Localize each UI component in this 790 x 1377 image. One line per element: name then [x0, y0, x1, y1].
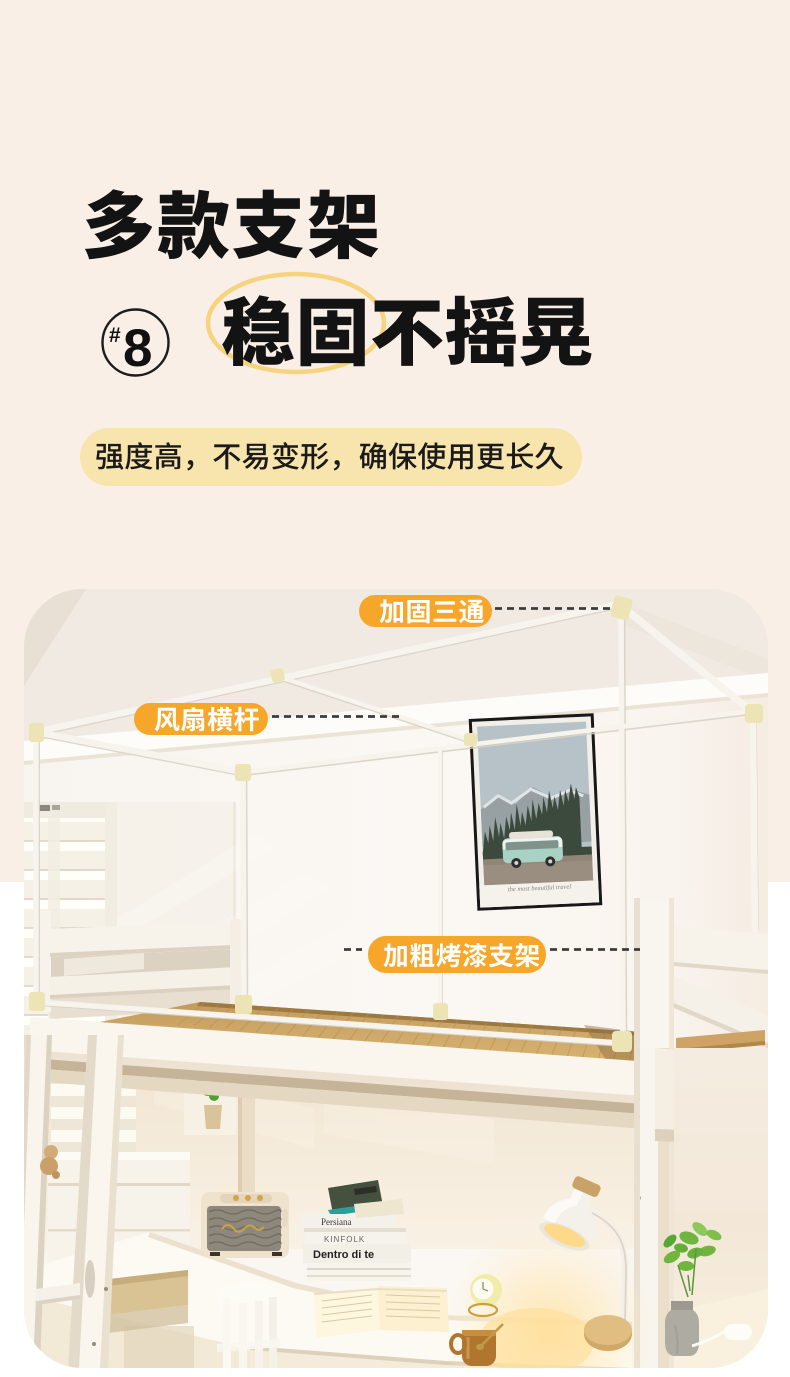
svg-text:8: 8 — [123, 319, 152, 378]
svg-text:Dentro di te: Dentro di te — [313, 1249, 374, 1261]
svg-text:#: # — [109, 324, 121, 347]
svg-text:KINFOLK: KINFOLK — [324, 1235, 365, 1244]
svg-text:Persiana: Persiana — [321, 1217, 352, 1227]
